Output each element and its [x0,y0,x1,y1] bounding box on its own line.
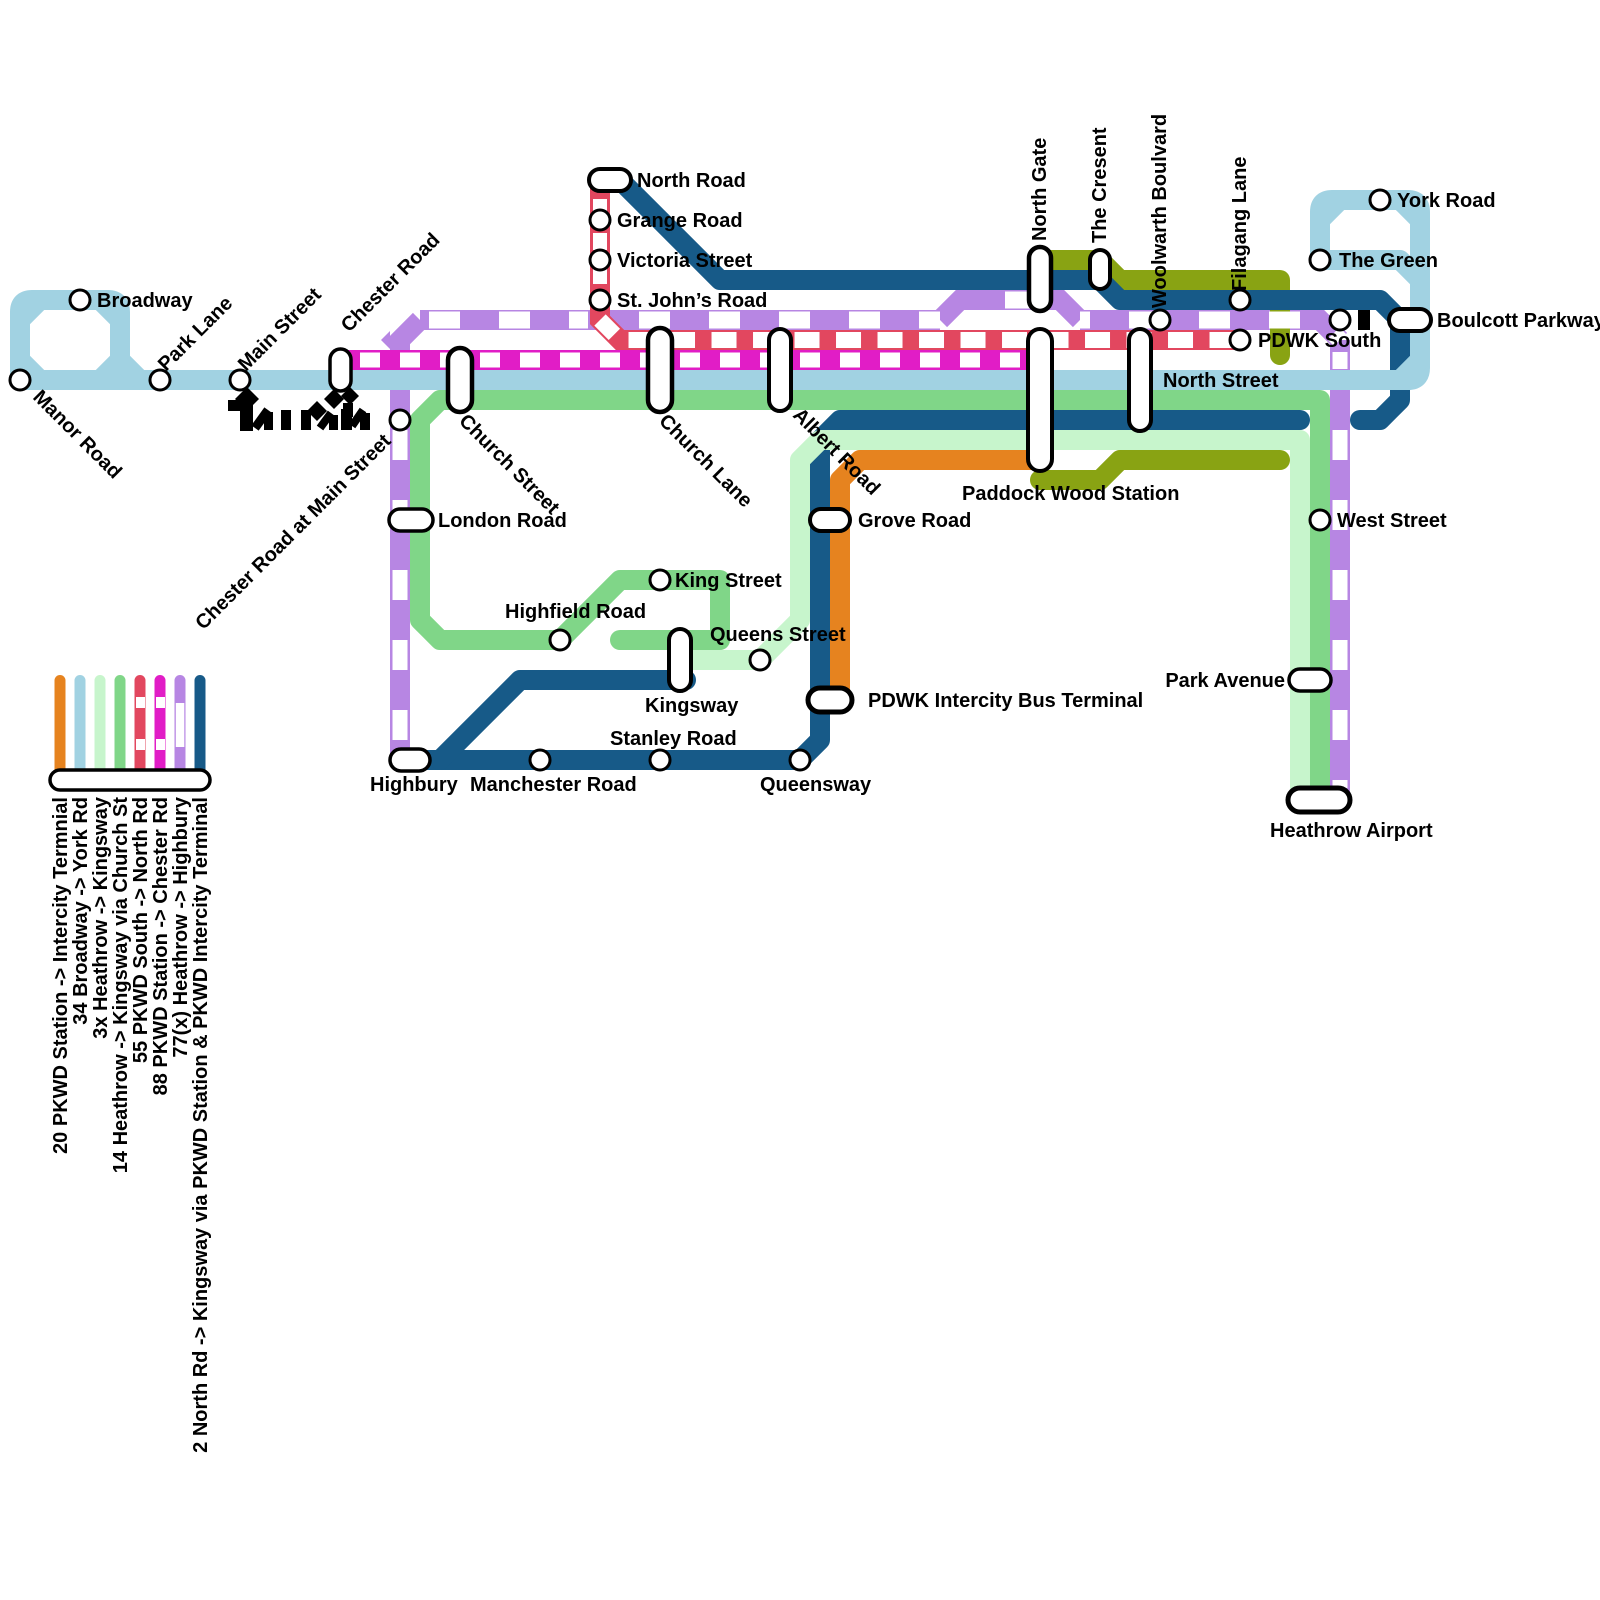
svg-text:34 Broadway -> York Rd: 34 Broadway -> York Rd [70,797,92,1025]
svg-text:Grange Road: Grange Road [617,210,743,232]
svg-text:North Road: North Road [637,170,746,192]
svg-text:York Road: York Road [1397,190,1496,212]
svg-text:Victoria Street: Victoria Street [617,250,753,272]
svg-text:North Gate: North Gate [1029,138,1051,241]
svg-text:Paddock Wood Station: Paddock Wood Station [962,483,1179,505]
svg-text:Highbury: Highbury [370,774,459,796]
svg-text:2 North Rd -> Kingsway via PKW: 2 North Rd -> Kingsway via PKWD Station … [190,797,212,1453]
svg-text:55 PKWD South -> North Rd: 55 PKWD South -> North Rd [130,797,152,1063]
svg-text:St. John’s Road: St. John’s Road [617,290,767,312]
svg-text:Woolwarth Boulvard: Woolwarth Boulvard [1149,114,1171,308]
svg-text:Filagang Lane: Filagang Lane [1229,157,1251,291]
svg-text:The Green: The Green [1339,250,1438,272]
svg-text:PDWK South: PDWK South [1258,330,1381,352]
svg-text:Highfield Road: Highfield Road [505,601,646,623]
svg-text:14 Heathrow -> Kingsway via Ch: 14 Heathrow -> Kingsway via Church St [110,797,132,1174]
svg-text:Broadway: Broadway [97,290,193,312]
svg-text:20 PKWD Station -> Intercity T: 20 PKWD Station -> Intercity Termnial [50,797,72,1154]
svg-text:Boulcott Parkway: Boulcott Parkway [1437,310,1600,332]
svg-text:PDWK Intercity Bus Terminal: PDWK Intercity Bus Terminal [868,690,1143,712]
svg-text:Park Avenue: Park Avenue [1165,670,1285,692]
svg-text:Manchester Road: Manchester Road [470,774,637,796]
svg-text:Stanley Road: Stanley Road [610,728,737,750]
svg-text:Heathrow Airport: Heathrow Airport [1270,820,1433,842]
svg-text:Queens Street: Queens Street [710,624,846,646]
svg-text:3x Heathrow -> Kingsway: 3x Heathrow -> Kingsway [90,796,112,1039]
svg-text:Kingsway: Kingsway [645,695,739,717]
svg-text:Queensway: Queensway [760,774,872,796]
svg-text:West Street: West Street [1337,510,1447,532]
svg-text:88 PKWD Station -> Chester Rd: 88 PKWD Station -> Chester Rd [150,797,172,1095]
svg-text:77(x) Heathrow -> Highbury: 77(x) Heathrow -> Highbury [170,796,192,1057]
svg-text:King Street: King Street [675,570,782,592]
svg-text:The Cresent: The Cresent [1089,127,1111,243]
svg-text:North Street: North Street [1163,370,1279,392]
svg-text:Grove Road: Grove Road [858,510,971,532]
